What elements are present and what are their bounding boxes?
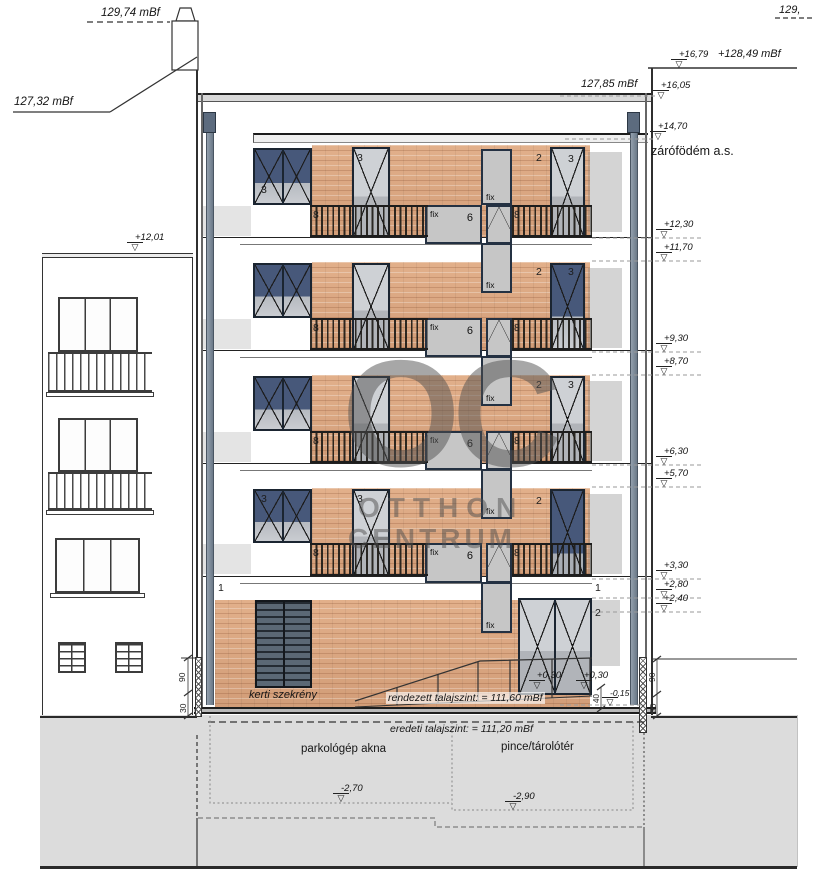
window-tag: 3 <box>568 153 574 165</box>
parapet-level-label: +128,49 mBf <box>718 48 781 60</box>
downpipe-head-right <box>627 112 640 133</box>
level-marker-plus16-79: +16,79▽ <box>679 50 708 68</box>
dim-30-right: 30 <box>648 704 658 713</box>
level-marker-plus8-70: +8,70▽ <box>664 357 688 375</box>
garden-cabinet-louver <box>255 600 312 688</box>
level-marker-minus2-70: -2,70▽ <box>341 784 363 802</box>
stair-window-tag: fix <box>486 280 495 290</box>
rail-tag: 8 <box>313 547 319 559</box>
dim-90-right: 90 <box>647 673 657 682</box>
level-triangle-icon: ▽ <box>127 242 143 251</box>
stair-window-tag: fix <box>486 620 495 630</box>
downpipe-left <box>206 133 214 705</box>
balcony-door-pair-f2 <box>253 376 312 431</box>
level-marker-plus3-30: +3,30▽ <box>664 561 688 579</box>
party-wall-left-inner <box>201 93 203 707</box>
balcony-door-pair-f3 <box>253 263 312 318</box>
level-triangle-icon: ▽ <box>671 59 687 68</box>
neighbor-balcony-slab-1 <box>46 392 154 397</box>
fence-post-right <box>639 657 647 733</box>
level-triangle-icon: ▽ <box>602 697 618 706</box>
level-marker-plus6-30: +6,30▽ <box>664 447 688 465</box>
fix-tag: fix <box>430 209 439 219</box>
neighbor-window-2 <box>58 418 138 472</box>
roof-slab-fascia <box>253 133 648 143</box>
window-tag: 2 <box>536 266 542 278</box>
neighbor-window-1 <box>58 297 138 352</box>
window-tag: 3 <box>568 379 574 391</box>
level-triangle-icon: ▽ <box>333 793 349 802</box>
cast-shadow <box>588 494 622 574</box>
window-tag: 3 <box>261 493 267 505</box>
balcony-railing-f4-right <box>512 205 592 237</box>
neighbor-eaves-level-label: 127,32 mBf <box>14 96 73 108</box>
level-triangle-icon: ▽ <box>656 478 672 487</box>
neighbor-balcony-railing-1 <box>48 352 152 392</box>
fence-post-left <box>195 657 202 717</box>
level-triangle-icon: ▽ <box>505 801 521 810</box>
level-marker-street: -0,15▽ <box>610 688 629 706</box>
level-triangle-icon: ▽ <box>529 680 545 689</box>
level-triangle-icon: ▽ <box>650 131 666 140</box>
layer-tag: 1 <box>595 582 601 594</box>
balcony-railing-f1-right <box>512 543 592 576</box>
party-wall-right-outer <box>651 68 653 715</box>
original-grade-label: eredeti talajszint: = 111,20 mBf <box>390 723 533 735</box>
level-triangle-icon: ▽ <box>656 603 672 612</box>
balcony-door-pair-f4 <box>253 148 312 205</box>
downpipe-right <box>630 133 638 705</box>
watermark-logo-text: OC <box>342 338 554 490</box>
level-marker-plus5-70: +5,70▽ <box>664 469 688 487</box>
stair-window-2: fix <box>481 243 512 293</box>
level-triangle-icon: ▽ <box>576 680 592 689</box>
window-tag: 3 <box>261 184 267 196</box>
level-marker-plus12-01: +12,01▽ <box>135 233 164 251</box>
level-marker-plus12-30: +12,30▽ <box>664 220 693 238</box>
stair-window-tag: fix <box>486 192 495 202</box>
level-triangle-icon: ▽ <box>656 456 672 465</box>
window-6-tag: 6 <box>467 212 473 224</box>
neighbor-window-3 <box>55 538 140 593</box>
stair-window-1: fix <box>481 149 512 205</box>
elevation-drawing-sheet: fix fix 6 3 3 2 3 8 8 fix fix 6 2 3 8 8 <box>0 0 836 891</box>
rail-tag: 8 <box>313 435 319 447</box>
level-marker-plus9-30: +9,30▽ <box>664 334 688 352</box>
dim-30-left: 30 <box>178 704 188 713</box>
watermark-line1: OTTHON <box>358 494 524 522</box>
cast-shadow <box>588 268 622 348</box>
cast-shadow <box>588 152 622 232</box>
watermark-line2: CENTRUM <box>348 525 516 553</box>
foundation-band <box>194 707 656 714</box>
balcony-railing-f4-left <box>310 205 428 237</box>
downpipe-head-left <box>203 112 216 133</box>
roof-slab-label: zárófödém a.s. <box>651 144 734 158</box>
window-tag: 2 <box>536 152 542 164</box>
level-marker-plus11-70: +11,70▽ <box>664 243 693 261</box>
layer-tag: 2 <box>595 607 601 619</box>
window-tag: 3 <box>357 152 363 164</box>
fix-window-f4: fix 6 <box>425 205 482 244</box>
level-marker-plus16-05: +16,05▽ <box>661 81 690 99</box>
stair-window-5: fix <box>481 582 512 633</box>
cast-shadow <box>588 381 622 461</box>
layer-tag: 1 <box>218 582 224 594</box>
neighbor-window-sill <box>50 593 145 598</box>
level-marker-threshold-b: +0,30▽ <box>584 671 608 689</box>
attic-level-label: 127,85 mBf <box>581 78 637 90</box>
level-triangle-icon: ▽ <box>656 252 672 261</box>
level-triangle-icon: ▽ <box>656 366 672 375</box>
finished-grade-label: rendezett talajszint: = 111,60 mBf <box>386 692 545 704</box>
corner-partial-level-label: 129, <box>779 4 800 16</box>
rail-tag: 8 <box>313 209 319 221</box>
level-triangle-icon: ▽ <box>653 90 669 99</box>
basement-room-right-label: pince/tárolótér <box>501 741 574 753</box>
level-marker-plus14-70: +14,70▽ <box>658 122 687 140</box>
rail-tag: 8 <box>313 322 319 334</box>
level-triangle-icon: ▽ <box>656 570 672 579</box>
neighbor-cellar-window-1 <box>58 642 86 673</box>
ground-soil-mass <box>40 715 798 867</box>
dim-40-entrance: 40 <box>592 694 601 703</box>
basement-room-left-label: parkológép akna <box>301 743 386 755</box>
level-marker-minus2-90: -2,90▽ <box>513 792 535 810</box>
party-wall-left-outer <box>196 57 198 715</box>
rail-tag: 8 <box>514 209 520 221</box>
party-wall-right-inner <box>645 93 647 707</box>
neighbor-balcony-railing-2 <box>48 472 152 510</box>
level-triangle-icon: ▽ <box>656 229 672 238</box>
section-bottom-line <box>40 866 797 869</box>
roof-parapet-band <box>196 93 653 102</box>
garden-cabinet-label: kerti szekrény <box>249 689 317 701</box>
window-tag: 3 <box>568 266 574 278</box>
neighbor-balcony-slab-2 <box>46 510 154 515</box>
ground-surface-left <box>40 716 197 718</box>
level-marker-threshold-a: +0,30▽ <box>537 671 561 689</box>
ground-surface-right <box>651 716 797 718</box>
neighbor-chimney-level-label: 129,74 mBf <box>101 7 160 19</box>
neighbor-cellar-window-2 <box>115 642 143 673</box>
casement-window-f4 <box>486 205 512 244</box>
level-triangle-icon: ▽ <box>656 343 672 352</box>
dim-90-left: 90 <box>177 673 187 682</box>
neighbor-roof-edge <box>42 253 193 258</box>
level-marker-plus2-40: +2,40▽ <box>664 594 688 612</box>
